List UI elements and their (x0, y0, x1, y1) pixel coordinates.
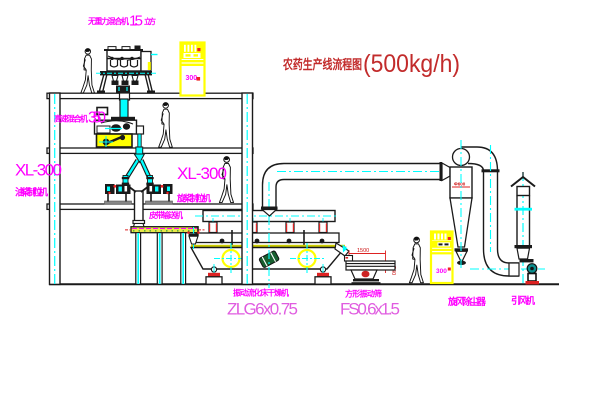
svg-text:皮带输送机: 皮带输送机 (148, 210, 183, 220)
svg-text:FS0.6x1.5: FS0.6x1.5 (340, 300, 400, 319)
svg-text:300: 300 (186, 75, 198, 82)
svg-text:引风机: 引风机 (511, 295, 535, 307)
svg-text:XL-300: XL-300 (15, 161, 62, 180)
svg-text:ZLG6x0.75: ZLG6x0.75 (227, 300, 298, 319)
svg-text:(500kg/h): (500kg/h) (363, 50, 460, 78)
svg-text:油桨制粒机: 油桨制粒机 (15, 187, 48, 199)
svg-text:无重力混合机: 无重力混合机 (87, 16, 129, 26)
svg-text:1.5: 1.5 (129, 13, 143, 30)
svg-text:立方: 立方 (144, 16, 157, 26)
svg-text:振动流化床干燥机: 振动流化床干燥机 (233, 288, 289, 298)
svg-text:方形振动筛: 方形振动筛 (345, 289, 382, 299)
svg-text:350: 350 (88, 110, 106, 127)
svg-text:Φ600: Φ600 (454, 182, 466, 187)
svg-text:高速混合机: 高速混合机 (54, 114, 88, 124)
svg-text:旋风除尘器: 旋风除尘器 (447, 296, 486, 308)
svg-text:300: 300 (436, 268, 447, 275)
svg-text:农药生产线流程图: 农药生产线流程图 (282, 57, 362, 72)
svg-text:1500: 1500 (357, 248, 369, 254)
svg-text:XL-300: XL-300 (177, 164, 227, 183)
svg-text:旋桨制粒机: 旋桨制粒机 (176, 193, 211, 204)
